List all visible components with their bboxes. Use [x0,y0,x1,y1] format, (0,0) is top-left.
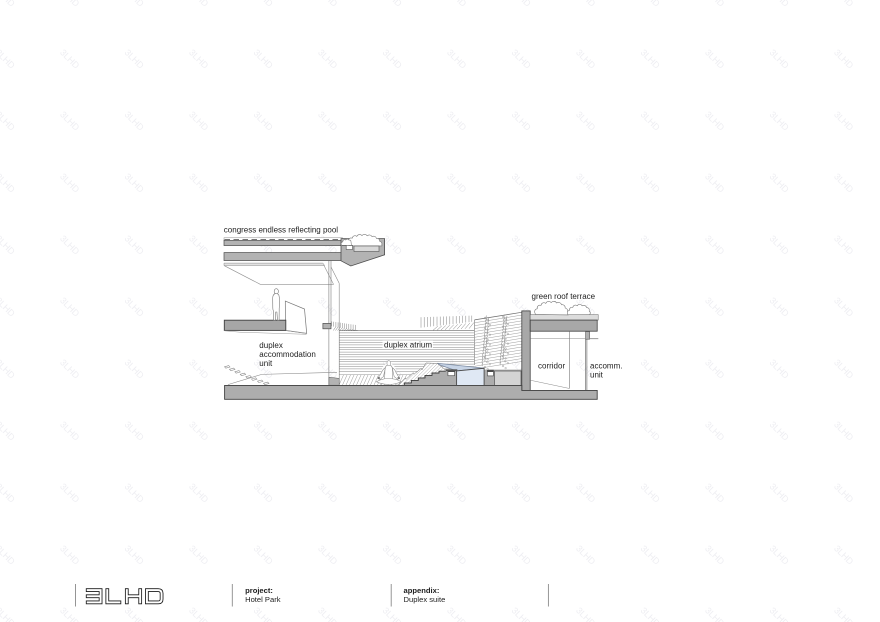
svg-text:unit: unit [259,359,273,368]
svg-text:green roof terrace: green roof terrace [532,292,596,301]
svg-text:duplex: duplex [259,341,283,350]
svg-text:duplex atrium: duplex atrium [384,340,432,349]
svg-text:unit: unit [590,371,604,380]
svg-text:project:: project: [245,586,273,595]
svg-text:accommodation: accommodation [259,350,315,359]
svg-text:Hotel Park: Hotel Park [245,595,281,604]
svg-text:congress endless reflecting po: congress endless reflecting pool [224,226,339,235]
svg-text:corridor: corridor [538,361,565,370]
svg-text:appendix:: appendix: [404,586,440,595]
svg-text:accomm.: accomm. [590,361,622,370]
svg-text:Duplex suite: Duplex suite [404,595,446,604]
